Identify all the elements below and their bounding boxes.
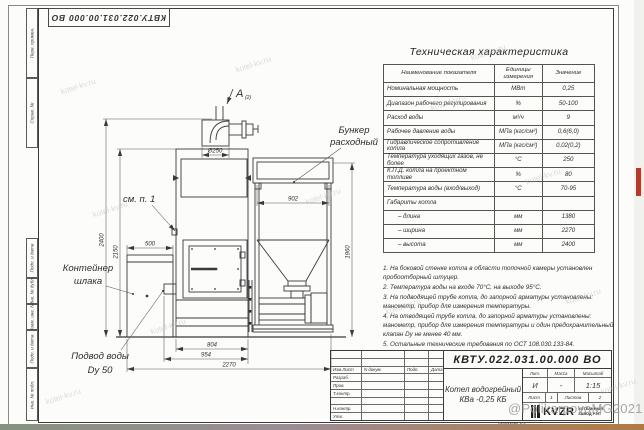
spec-table-row: – высотамм2400 (384, 239, 595, 253)
margin-box-perv-primen: Перв. примен. (26, 8, 38, 78)
view-a-marker: А (2) (227, 88, 251, 104)
boiler-door-bolts (173, 175, 251, 290)
spec-header-unit: Единицы измерения (494, 65, 542, 83)
red-edge-marker (636, 168, 641, 196)
title-block-left: Изм.Лист N докум. Подп. Дата Разраб. Про… (331, 351, 444, 420)
spec-table-row: Температура воды (вход/выход)°С70-95 (384, 182, 595, 196)
label-slag-2: шлака (74, 276, 102, 287)
spec-table-title: Техническая характеристика (383, 46, 595, 58)
spec-header-value: Значение (542, 65, 594, 83)
slag-container-outline (127, 255, 173, 337)
svg-text:954: 954 (201, 353, 212, 359)
svg-text:902: 902 (288, 197, 299, 203)
margin-box-inv-podl: Инв. № подл. (26, 368, 38, 421)
svg-text:804: 804 (207, 343, 218, 349)
scale-value: 1:15 (575, 378, 611, 392)
label-bunker-1: Бункер (338, 125, 369, 136)
spec-table-row: – ширинамм2270 (384, 224, 595, 238)
margin-box-sprav-n: Справ. № (26, 78, 38, 148)
boiler-drawing: А (2) (40, 30, 380, 380)
bottom-photo-strip (0, 424, 644, 430)
svg-text:2400: 2400 (100, 233, 106, 248)
margin-box-vzam-inv: Взам. инв. № (26, 304, 38, 330)
spec-table-row: Расход водым³/ч9 (384, 111, 595, 125)
dimensions: 500 Ø250 902 2400 2150 1960 804 954 2270 (100, 119, 355, 372)
note-line: 5. Остальные технические требования по О… (383, 341, 614, 350)
bunker-outline (249, 158, 333, 332)
spec-table-row: Рабочее давление водыМПа (кгс/см²)0,6(6,… (384, 125, 595, 139)
spec-table-row: Габариты котла (384, 196, 595, 210)
spec-table-row: Гидравлическое сопротивление котлаМПа (к… (384, 139, 595, 153)
svg-text:Ø250: Ø250 (207, 149, 223, 155)
spec-header-name: Наименование показателя (384, 65, 495, 83)
spec-header-row: Наименование показателя Единицы измерени… (384, 65, 595, 83)
margin-box-podp-data-2: Подп. и дата (26, 330, 38, 368)
svg-text:500: 500 (145, 242, 156, 248)
spec-table-row: Температура уходящих газов, не более°С25… (384, 153, 595, 167)
note-line: 4. На отводящей трубе котла, до запорной… (383, 313, 614, 340)
note-line: 3. На подводящей трубе котла, до запорно… (383, 294, 614, 312)
spec-table-body: Номинальная мощностьМВт0,25Диапазон рабо… (384, 83, 595, 253)
label-slag-1: Контейнер (63, 263, 113, 274)
spec-table-row: К.П.Д. котла на проектном топливе%80 (384, 168, 595, 182)
mass-value: - (548, 378, 575, 392)
spec-table-row: – длинамм1380 (384, 210, 595, 224)
svg-text:(2): (2) (245, 95, 251, 101)
spec-table: Наименование показателя Единицы измерени… (383, 64, 595, 253)
note-line: 2. Температура воды на входе 70°С, на вы… (383, 284, 614, 293)
label-water-2: Dу 50 (88, 365, 114, 376)
label-water-1: Подвод воды (71, 351, 129, 362)
spec-table-row: Диапазон рабочего регулирования%50-100 (384, 97, 595, 111)
title-block-doc-number: КВТУ.022.031.00.000 ВО (444, 351, 611, 369)
corner-doc-stamp: КВТУ.022.031.00.000 ВО (48, 8, 170, 27)
watermark-credit: @PolikarpovaMG2021 (508, 401, 643, 416)
svg-text:А: А (235, 88, 243, 100)
notes: 1. На боковой стенке котла в области топ… (383, 265, 614, 350)
lit-value: И (523, 378, 548, 392)
chimney-outline (202, 106, 258, 146)
label-see-note: см. п. 1 (123, 194, 155, 205)
corner-doc-number: КВТУ.022.031.00.000 ВО (51, 13, 166, 23)
svg-text:2270: 2270 (221, 363, 236, 369)
svg-text:2150: 2150 (114, 245, 120, 260)
spec-table-row: Номинальная мощностьМВт0,25 (384, 83, 595, 97)
svg-text:1960: 1960 (346, 245, 352, 259)
margin-box-podp-data-1: Подп. и дата (26, 238, 38, 278)
note-line: 1. На боковой стенке котла в области топ… (383, 265, 614, 283)
margin-box-inv-dubl: Инв. № дубл. (26, 278, 38, 304)
label-bunker-2: расходный (329, 137, 379, 148)
